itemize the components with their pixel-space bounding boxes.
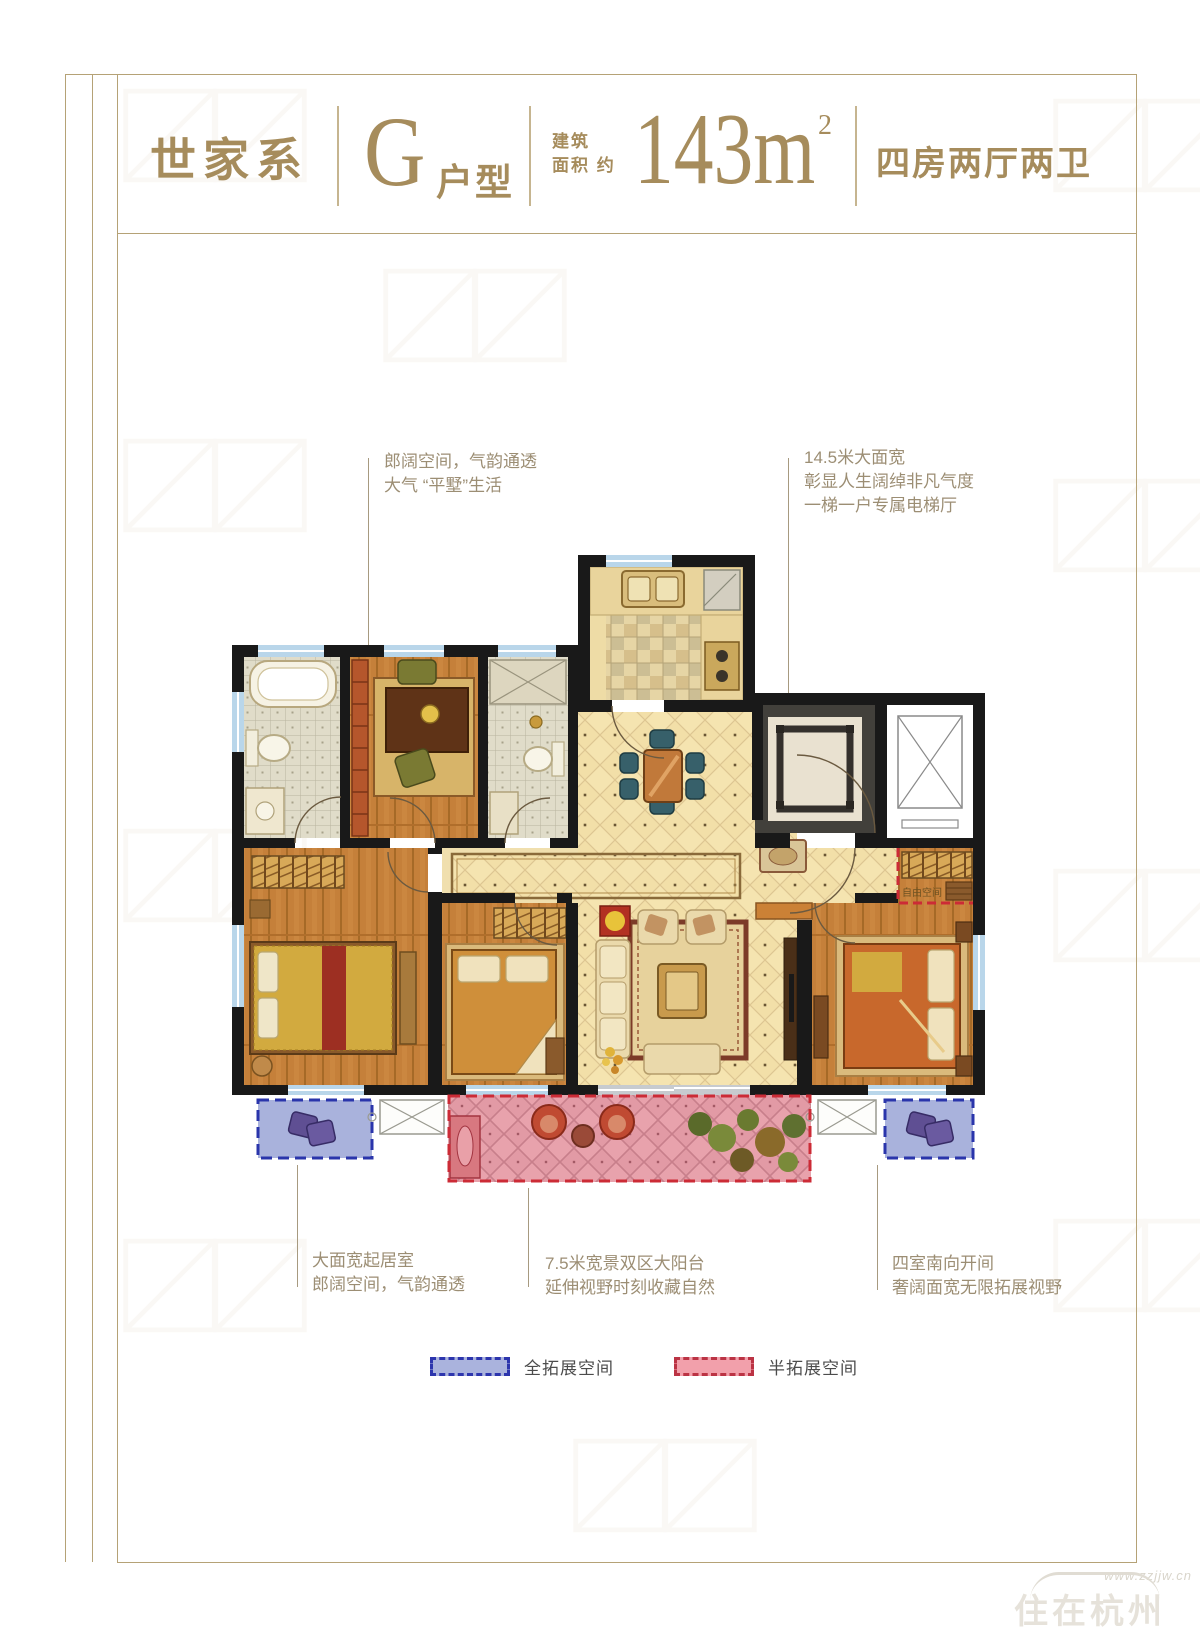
background-watermark-icon [370,260,550,380]
area-label: 建筑 面积 约 [552,130,616,178]
background-watermark-icon [1040,470,1200,590]
frame-bottom-line [117,1562,1137,1563]
window [232,692,244,752]
header-separator [337,106,339,206]
area-value: 143m [634,96,815,204]
window [288,1085,364,1095]
half-extension-swatch [674,1357,754,1376]
sliding-door [598,1085,750,1095]
header-separator [855,106,857,206]
half-extension-label: 半拓展空间 [768,1354,858,1379]
annotation-bottom-right: 四室南向开间 奢阔面宽无限拓展视野 [892,1252,1062,1300]
background-watermark-icon [110,1230,290,1350]
room-layout-label: 四房两厅两卫 [876,136,1092,185]
leader-line-bottom-center [528,1188,529,1287]
ac-platform-right [806,1100,876,1134]
annotation-bottom-left: 大面宽起居室 郎阔空间，气韵通透 [312,1249,465,1297]
background-watermark-icon [1040,860,1200,980]
floorplan-drawing: 自由空间 [225,550,990,1185]
window [973,935,985,1010]
window [232,925,244,1007]
header-separator [529,106,531,206]
ac-platform-left [368,1100,444,1134]
series-title: 世家系 [150,124,309,190]
full-extension-zone-right [885,1100,973,1158]
full-extension-swatch [430,1357,510,1376]
floorplan-brochure-page: 世家系 G 户型 建筑 面积 约 143m 2 四房两厅两卫 郎阔空间，气韵通透… [0,0,1200,1630]
full-extension-label: 全拓展空间 [524,1354,614,1379]
full-extension-zone-left [258,1100,372,1158]
frame-outer-line [65,74,66,1562]
legend: 全拓展空间 半拓展空间 [430,1354,858,1379]
annotation-top-right: 14.5米大面宽 彰显人生阔绰非凡气度 一梯一户专属电梯厅 [804,446,974,518]
frame-content-right [1136,74,1137,1562]
window [606,555,672,567]
window [258,645,324,657]
header-divider-line [117,233,1137,234]
entry-hall-detail [768,717,862,821]
frame-inner-line [92,74,93,1562]
window [868,1085,946,1095]
frame-content-left [117,74,118,1562]
corridor-inset [452,854,740,898]
annotation-bottom-center: 7.5米宽景双区大阳台 延伸视野时刻收藏自然 [545,1252,715,1300]
window [384,645,444,657]
bedroom-3-furniture [814,922,972,1076]
window [466,1085,548,1095]
background-watermark-icon [110,430,290,550]
unit-suffix: 户型 [436,152,514,206]
watermark-logo: 住在杭州 [1014,1584,1166,1630]
window [498,645,556,657]
free-space-label: 自由空间 [902,886,942,899]
area-superscript: 2 [818,110,832,142]
site-watermark: www.zzjjw.cn 住在杭州 [1008,1568,1198,1626]
background-watermark-icon [1040,1210,1200,1330]
unit-letter: G [364,100,425,204]
kitchen-tile [606,615,706,700]
background-watermark-icon [560,1430,740,1550]
annotation-top-left: 郎阔空间，气韵通透 大气 “平墅”生活 [384,450,537,498]
frame-top-line [65,74,1136,75]
